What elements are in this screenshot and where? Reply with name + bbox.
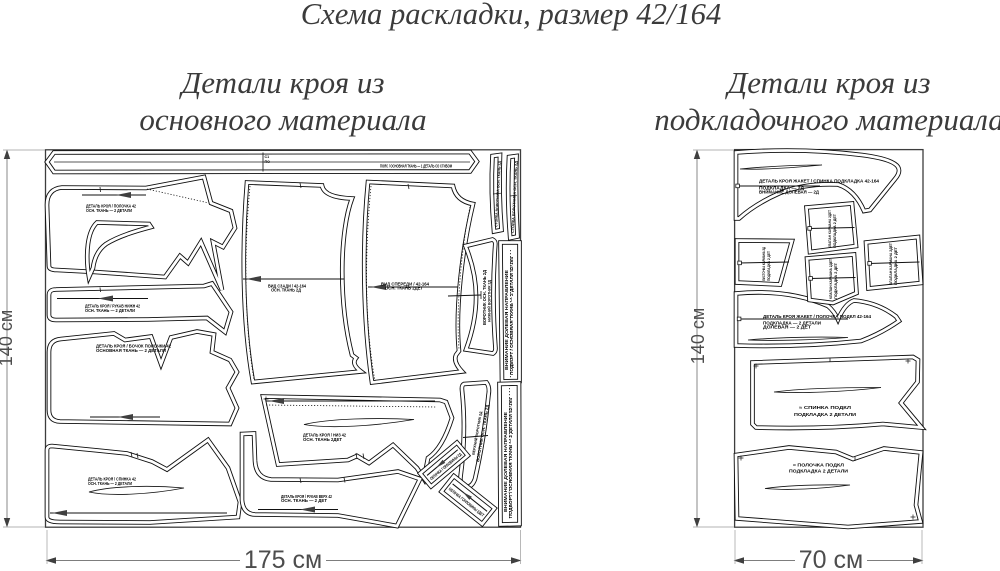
svg-text:175 см: 175 см <box>244 546 322 571</box>
svg-text:ПОДКЛАДКА 2 ДЕТ: ПОДКЛАДКА 2 ДЕТ <box>833 213 837 248</box>
svg-text:подкладочного материала: подкладочного материала <box>654 102 1000 137</box>
svg-text:≈ СПИНКА ПОДКЛ: ≈ СПИНКА ПОДКЛ <box>799 405 851 410</box>
svg-text:Схема раскладки, размер 42/164: Схема раскладки, размер 42/164 <box>301 0 722 31</box>
svg-text:ДОЛЕВАЯ — 2 ДЕТ: ДОЛЕВАЯ — 2 ДЕТ <box>763 325 811 330</box>
svg-text:ОСН. ТКАНЬ — 2 ДЕТАЛИ: ОСН. ТКАНЬ — 2 ДЕТАЛИ <box>86 208 132 213</box>
svg-text:основного материала: основного материала <box>139 102 426 137</box>
svg-text:ВНИМАНИЕ ДОЛЕВАЯ — 2Д: ВНИМАНИЕ ДОЛЕВАЯ — 2Д <box>759 190 819 195</box>
svg-text:ПОДБОРТ / ОСНОВНАЯ ТКАНЬ — 2 Д: ПОДБОРТ / ОСНОВНАЯ ТКАНЬ — 2 ДЕТАЛИ 42-1… <box>509 256 514 375</box>
svg-text:ВНИМАНИЕ ДОЛЕВАЯ НАПРАВЛЕНИЕ: ВНИМАНИЕ ДОЛЕВАЯ НАПРАВЛЕНИЕ <box>504 270 509 370</box>
svg-text:ЛИСТОЧКА КАРМАНА 2Д: ЛИСТОЧКА КАРМАНА 2Д <box>762 247 766 281</box>
svg-text:ПОДБОРТ / ОСНОВНАЯ ТКАНЬ — 2 Д: ПОДБОРТ / ОСНОВНАЯ ТКАНЬ — 2 ДЕТАЛИ 42-1… <box>508 397 513 518</box>
svg-text:ДЕТАЛЬ КРОЯ ЖАКЕТ / СПИНКА ПОД: ДЕТАЛЬ КРОЯ ЖАКЕТ / СПИНКА ПОДКЛАДКА 42-… <box>759 179 880 184</box>
svg-text:ОСН. ТКАНЬ 2ДЕТ: ОСН. ТКАНЬ 2ДЕТ <box>385 286 423 291</box>
svg-text:С1: С1 <box>265 155 270 159</box>
svg-text:ПО: ПО <box>265 160 271 164</box>
svg-text:ДЕТАЛЬ КРОЯ ЖАКЕТ / ПОЛОЧКА ПО: ДЕТАЛЬ КРОЯ ЖАКЕТ / ПОЛОЧКА ПОДКЛ 42-164 <box>763 314 872 319</box>
svg-text:≈ ПОЛОЧКА ПОДКЛ: ≈ ПОЛОЧКА ПОДКЛ <box>793 463 844 468</box>
svg-text:ВНИМАНИЕ ДОЛЕВАЯ НАПРАВЛЕНИЕ: ВНИМАНИЕ ДОЛЕВАЯ НАПРАВЛЕНИЕ <box>503 412 508 512</box>
svg-text:ОСНОВНАЯ ТКАНЬ — 2 ДЕТАЛИ: ОСНОВНАЯ ТКАНЬ — 2 ДЕТАЛИ <box>96 348 166 353</box>
svg-text:КЛАПАН КАРМАНА 2ДЕТ: КЛАПАН КАРМАНА 2ДЕТ <box>828 209 832 248</box>
svg-text:ПОЯС / ОСНОВНАЯ ТКАНЬ — 1 ДЕТА: ПОЯС / ОСНОВНАЯ ТКАНЬ — 1 ДЕТАЛЬ СО СГИБ… <box>380 164 452 169</box>
svg-text:ПОДКЛАДКА 2 ДЕТ: ПОДКЛАДКА 2 ДЕТ <box>894 246 898 285</box>
svg-text:КЛАПАН КАРМАНА 2ДЕТ: КЛАПАН КАРМАНА 2ДЕТ <box>889 242 893 285</box>
svg-text:ПОДКЛАДКА 2 ДЕТ: ПОДКЛАДКА 2 ДЕТ <box>767 250 771 281</box>
svg-text:ПОДКЛАДКА 2 ДЕТАЛИ: ПОДКЛАДКА 2 ДЕТАЛИ <box>789 469 848 474</box>
svg-text:Детали кроя из: Детали кроя из <box>179 65 385 100</box>
svg-text:ПОДКЛАДКА 2 ДЕТАЛИ: ПОДКЛАДКА 2 ДЕТАЛИ <box>794 412 856 417</box>
svg-text:КЛАПАН КАРМАНА 2ДЕТ: КЛАПАН КАРМАНА 2ДЕТ <box>829 258 833 299</box>
svg-text:ВОРОТНИК ОСН. ТКАНЬ 2Д: ВОРОТНИК ОСН. ТКАНЬ 2Д <box>482 270 487 325</box>
svg-text:140 см: 140 см <box>688 308 708 364</box>
svg-text:ОСН. ТКАНЬ — 2 ДЕТАЛИ: ОСН. ТКАНЬ — 2 ДЕТАЛИ <box>88 481 132 486</box>
svg-text:НИЖНИЙ ВОРОТНИК 2Д: НИЖНИЙ ВОРОТНИК 2Д <box>488 280 492 322</box>
svg-text:140 см: 140 см <box>0 310 16 366</box>
svg-text:ОСН. ТКАНЬ 2Д: ОСН. ТКАНЬ 2Д <box>271 288 301 293</box>
svg-text:ОСН. ТКАНЬ — 2 ДЕТАЛИ: ОСН. ТКАНЬ — 2 ДЕТАЛИ <box>85 308 135 313</box>
svg-text:ПОДКЛАДКА 2 ДЕТ: ПОДКЛАДКА 2 ДЕТ <box>834 262 838 299</box>
svg-text:70 см: 70 см <box>799 546 863 571</box>
svg-text:Детали кроя из: Детали кроя из <box>725 65 931 100</box>
svg-text:ОСН. ТКАНЬ — 2 ДЕТ: ОСН. ТКАНЬ — 2 ДЕТ <box>281 498 327 503</box>
svg-text:ОСН. ТКАНЬ 2ДЕТ: ОСН. ТКАНЬ 2ДЕТ <box>303 437 342 442</box>
